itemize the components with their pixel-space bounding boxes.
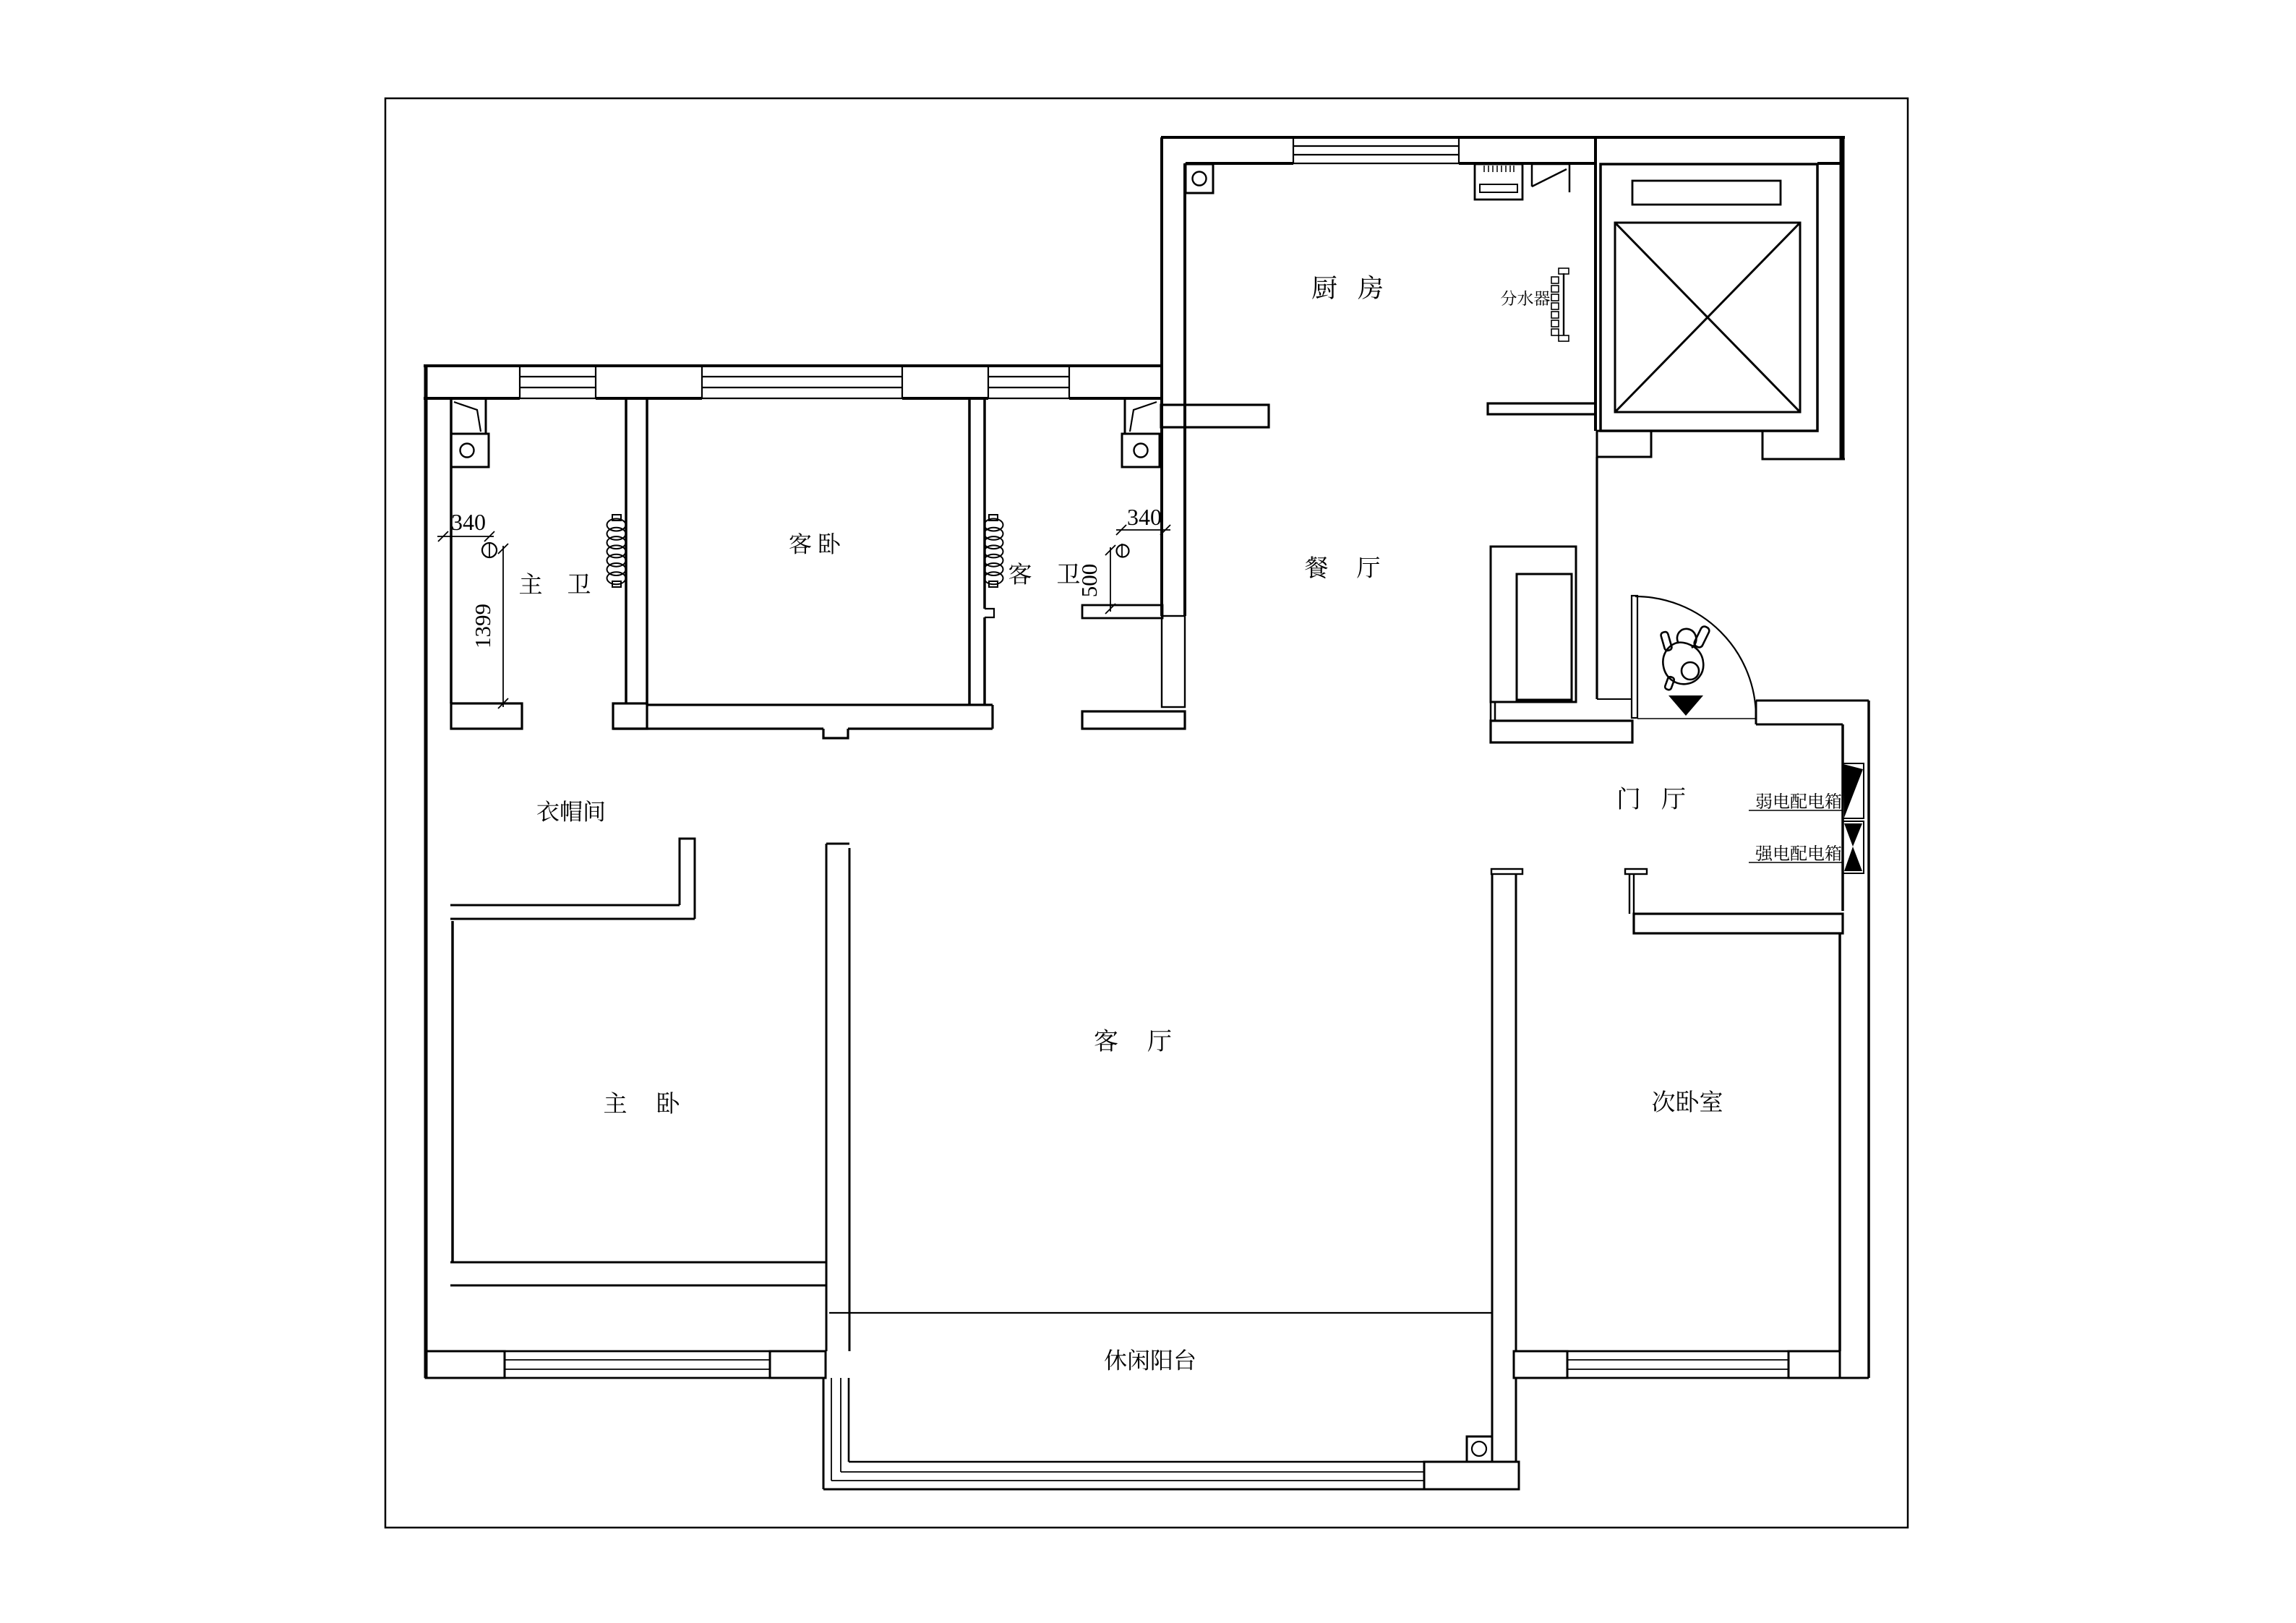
svg-text:次卧室: 次卧室	[1652, 1084, 1723, 1118]
svg-text:衣帽间: 衣帽间	[536, 794, 606, 827]
svg-text:厨: 厨	[1311, 268, 1337, 305]
svg-text:强电配电箱: 强电配电箱	[1755, 839, 1842, 865]
svg-text:卧: 卧	[656, 1085, 681, 1119]
svg-text:休闲阳台: 休闲阳台	[1104, 1342, 1196, 1376]
svg-text:客: 客	[1008, 556, 1032, 590]
svg-text:客: 客	[789, 526, 812, 560]
svg-text:340: 340	[1127, 504, 1162, 530]
svg-text:厅: 厅	[1661, 779, 1686, 815]
svg-text:主: 主	[519, 566, 543, 600]
svg-text:餐: 餐	[1305, 549, 1329, 583]
svg-text:房: 房	[1358, 268, 1384, 305]
svg-text:客: 客	[1094, 1022, 1118, 1057]
svg-text:分水器: 分水器	[1501, 286, 1551, 309]
svg-text:门: 门	[1616, 779, 1641, 815]
svg-text:1399: 1399	[470, 604, 495, 648]
svg-text:主: 主	[604, 1085, 627, 1119]
svg-text:卫: 卫	[1057, 556, 1081, 590]
svg-text:弱电配电箱: 弱电配电箱	[1755, 787, 1842, 813]
svg-text:厅: 厅	[1357, 549, 1381, 583]
svg-text:卫: 卫	[567, 566, 591, 600]
svg-text:厅: 厅	[1147, 1022, 1172, 1057]
svg-text:340: 340	[451, 509, 486, 535]
svg-text:卧: 卧	[818, 526, 841, 560]
